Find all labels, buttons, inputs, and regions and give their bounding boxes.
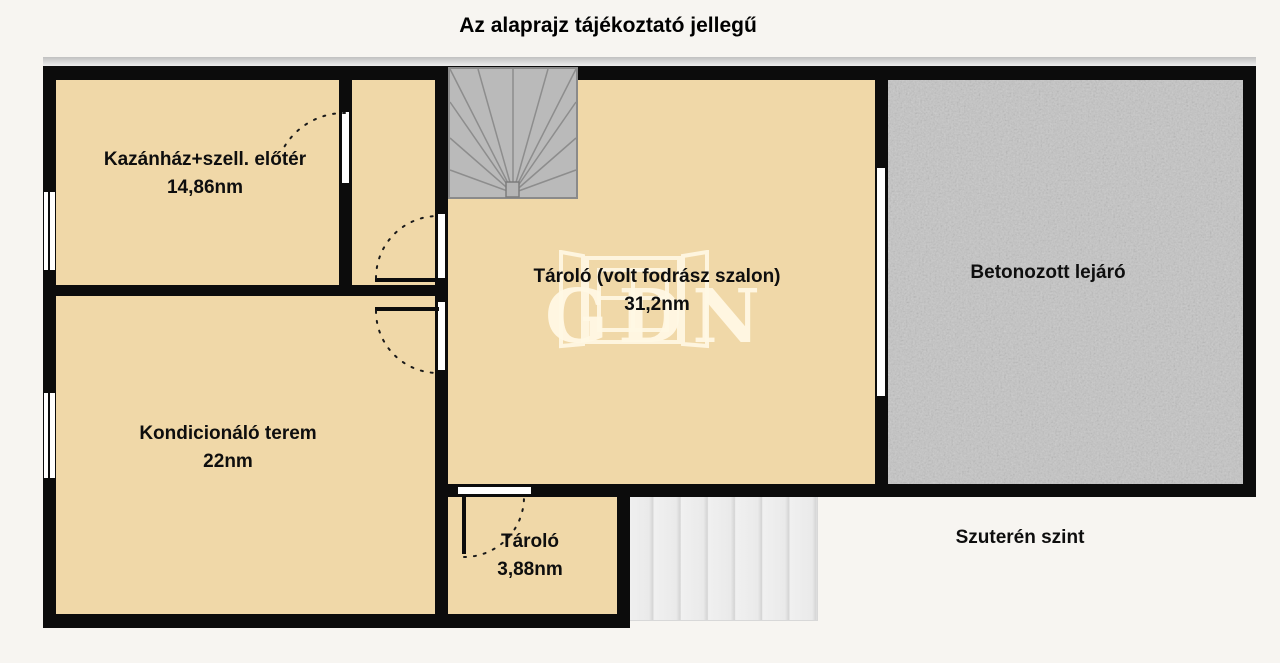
room-area: 31,2nm: [533, 291, 780, 319]
wall-room-divider: [43, 285, 448, 296]
window-boiler: [44, 192, 55, 270]
window-storage-ramp: [875, 168, 887, 396]
room-name: Kondicionáló terem: [139, 420, 316, 448]
room-name: Tároló (volt fodrász szalon): [533, 263, 780, 291]
wall-left: [43, 66, 56, 628]
plan-title: Az alaprajz tájékoztató jellegű: [459, 14, 757, 38]
wall-small-storage-right: [617, 484, 630, 628]
wall-mid-horizontal: [435, 484, 1256, 497]
room-area: 14,86nm: [104, 174, 306, 202]
door-opening-boiler: [340, 112, 351, 183]
wall-bottom-left: [43, 614, 630, 628]
wall-top: [43, 66, 1256, 80]
room-label-gym: Kondicionáló terem 22nm: [139, 420, 316, 476]
level-label: Szuterén szint: [956, 524, 1085, 552]
room-label-storage-main: Tároló (volt fodrász szalon) 31,2nm: [533, 263, 780, 319]
room-name: Tároló: [497, 528, 562, 556]
entrance-steps: [627, 497, 818, 621]
room-label-boiler: Kazánház+szell. előtér 14,86nm: [104, 146, 306, 202]
wall-right: [1243, 66, 1256, 497]
door-opening-gym: [436, 302, 447, 370]
window-gym: [44, 393, 55, 478]
room-name: Kazánház+szell. előtér: [104, 146, 306, 174]
level-label-text: Szuterén szint: [956, 524, 1085, 552]
top-wall-shadow: [43, 57, 1256, 66]
room-label-concrete-ramp: Betonozott lejáró: [970, 259, 1125, 287]
door-opening-small-storage: [458, 485, 531, 496]
window-pane: [48, 192, 50, 270]
room-area: 3,88nm: [497, 556, 562, 584]
room-label-storage-small: Tároló 3,88nm: [497, 528, 562, 584]
window-pane: [48, 393, 50, 478]
room-name: Betonozott lejáró: [970, 259, 1125, 287]
room-area: 22nm: [139, 448, 316, 476]
door-opening-corridor: [436, 214, 447, 278]
